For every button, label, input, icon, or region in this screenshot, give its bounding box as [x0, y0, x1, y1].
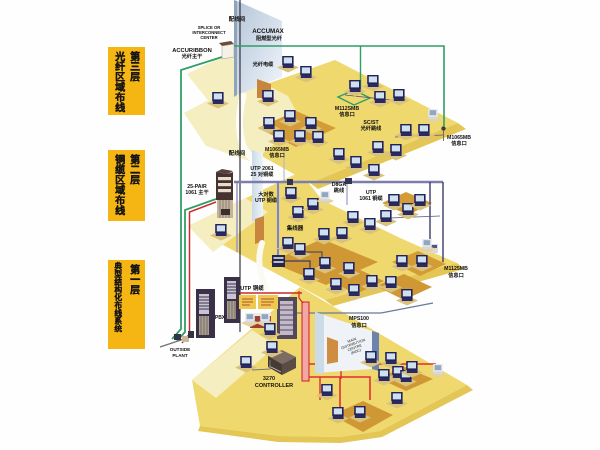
- svg-text:信息口: 信息口: [269, 151, 285, 159]
- svg-text:阻燃型光纤: 阻燃型光纤: [256, 34, 283, 42]
- svg-text:PBX: PBX: [215, 315, 226, 321]
- svg-text:ACCUMAX: ACCUMAX: [252, 28, 284, 35]
- svg-text:OUTSIDE: OUTSIDE: [170, 347, 190, 352]
- svg-text:大对数: 大对数: [258, 190, 274, 198]
- svg-text:配线间: 配线间: [229, 15, 246, 23]
- svg-text:UTP 铜缆: UTP 铜缆: [255, 196, 278, 204]
- svg-text:光纤跳线: 光纤跳线: [360, 124, 383, 132]
- svg-text:PLANT: PLANT: [172, 353, 188, 358]
- svg-text:CONTROLLER: CONTROLLER: [255, 383, 293, 389]
- svg-text:信息口: 信息口: [448, 271, 464, 279]
- svg-text:1061 主干: 1061 主干: [185, 188, 209, 196]
- svg-text:光纤主干: 光纤主干: [181, 52, 204, 60]
- svg-text:光纤电缆: 光纤电缆: [252, 60, 275, 68]
- svg-text:第二层: 第二层: [128, 153, 140, 185]
- svg-text:CENTER: CENTER: [200, 35, 217, 40]
- svg-text:UTP 铜缆: UTP 铜缆: [240, 284, 264, 292]
- svg-text:第三层: 第三层: [128, 50, 140, 82]
- svg-text:第一层: 第一层: [128, 263, 140, 295]
- svg-text:跳线: 跳线: [334, 186, 345, 194]
- svg-text:信息口: 信息口: [451, 139, 467, 147]
- svg-text:典型结构化布线系统: 典型结构化布线系统: [114, 261, 123, 333]
- svg-text:1061 铜缆: 1061 铜缆: [359, 194, 383, 202]
- svg-text:信息口: 信息口: [351, 321, 367, 329]
- svg-text:3270: 3270: [263, 376, 275, 382]
- svg-text:25 对铜缆: 25 对铜缆: [251, 170, 275, 178]
- svg-text:M1125MB: M1125MB: [444, 266, 468, 272]
- svg-text:集线器: 集线器: [286, 224, 304, 232]
- svg-text:MPS100: MPS100: [349, 316, 369, 322]
- svg-text:信息口: 信息口: [339, 110, 355, 118]
- svg-text:配线间: 配线间: [229, 149, 246, 157]
